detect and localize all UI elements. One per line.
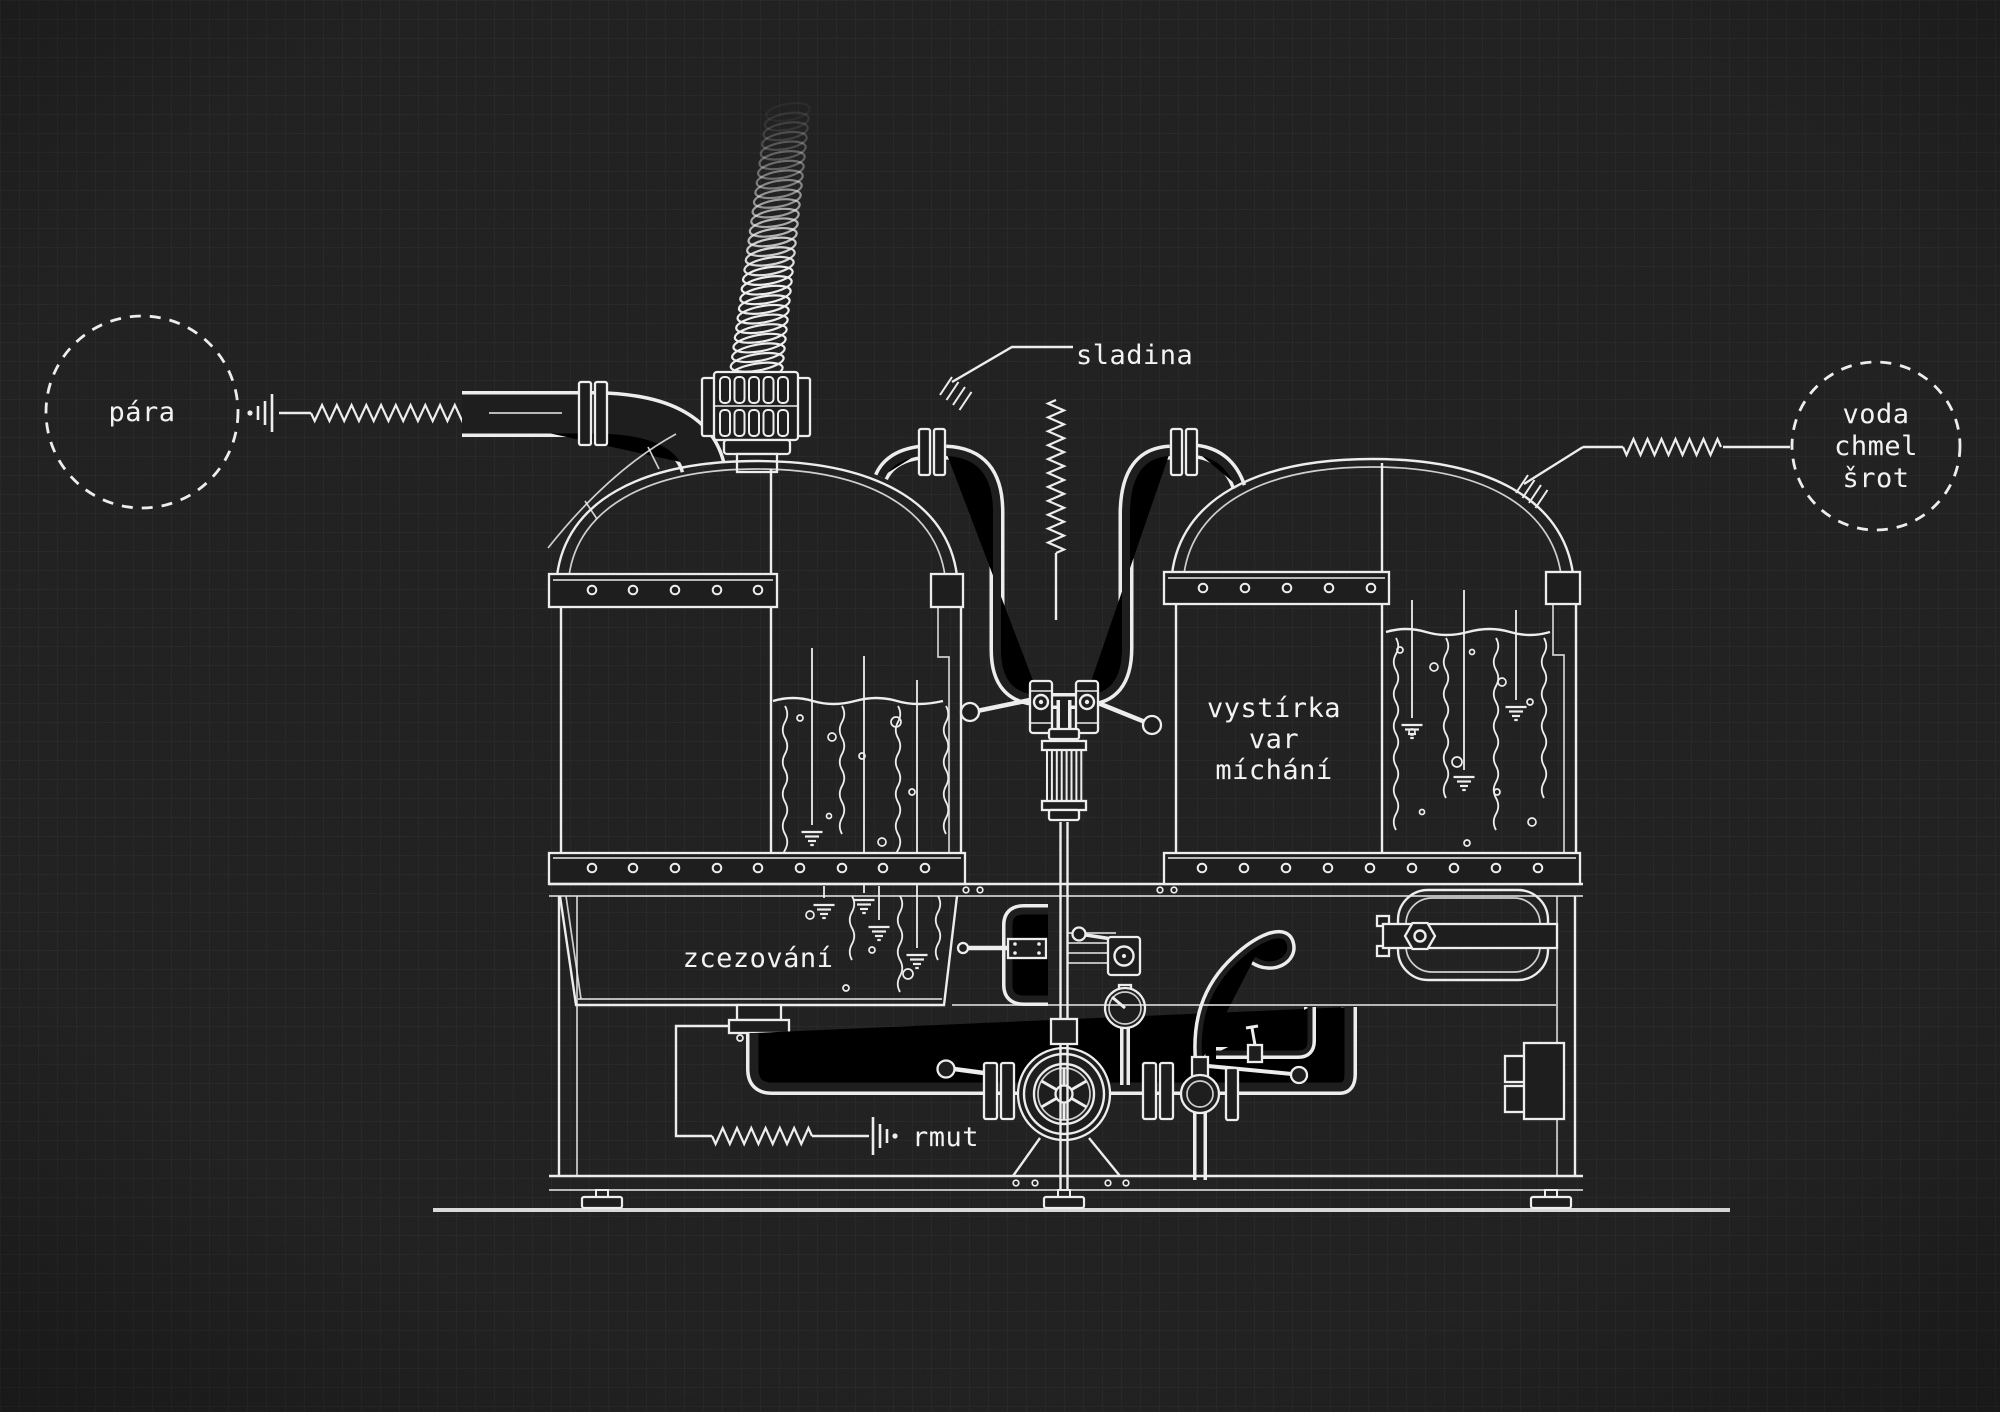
vignette <box>0 0 2000 1412</box>
blueprint-stage: pára <box>0 0 2000 1412</box>
brewhouse-diagram: pára <box>0 0 2000 1412</box>
